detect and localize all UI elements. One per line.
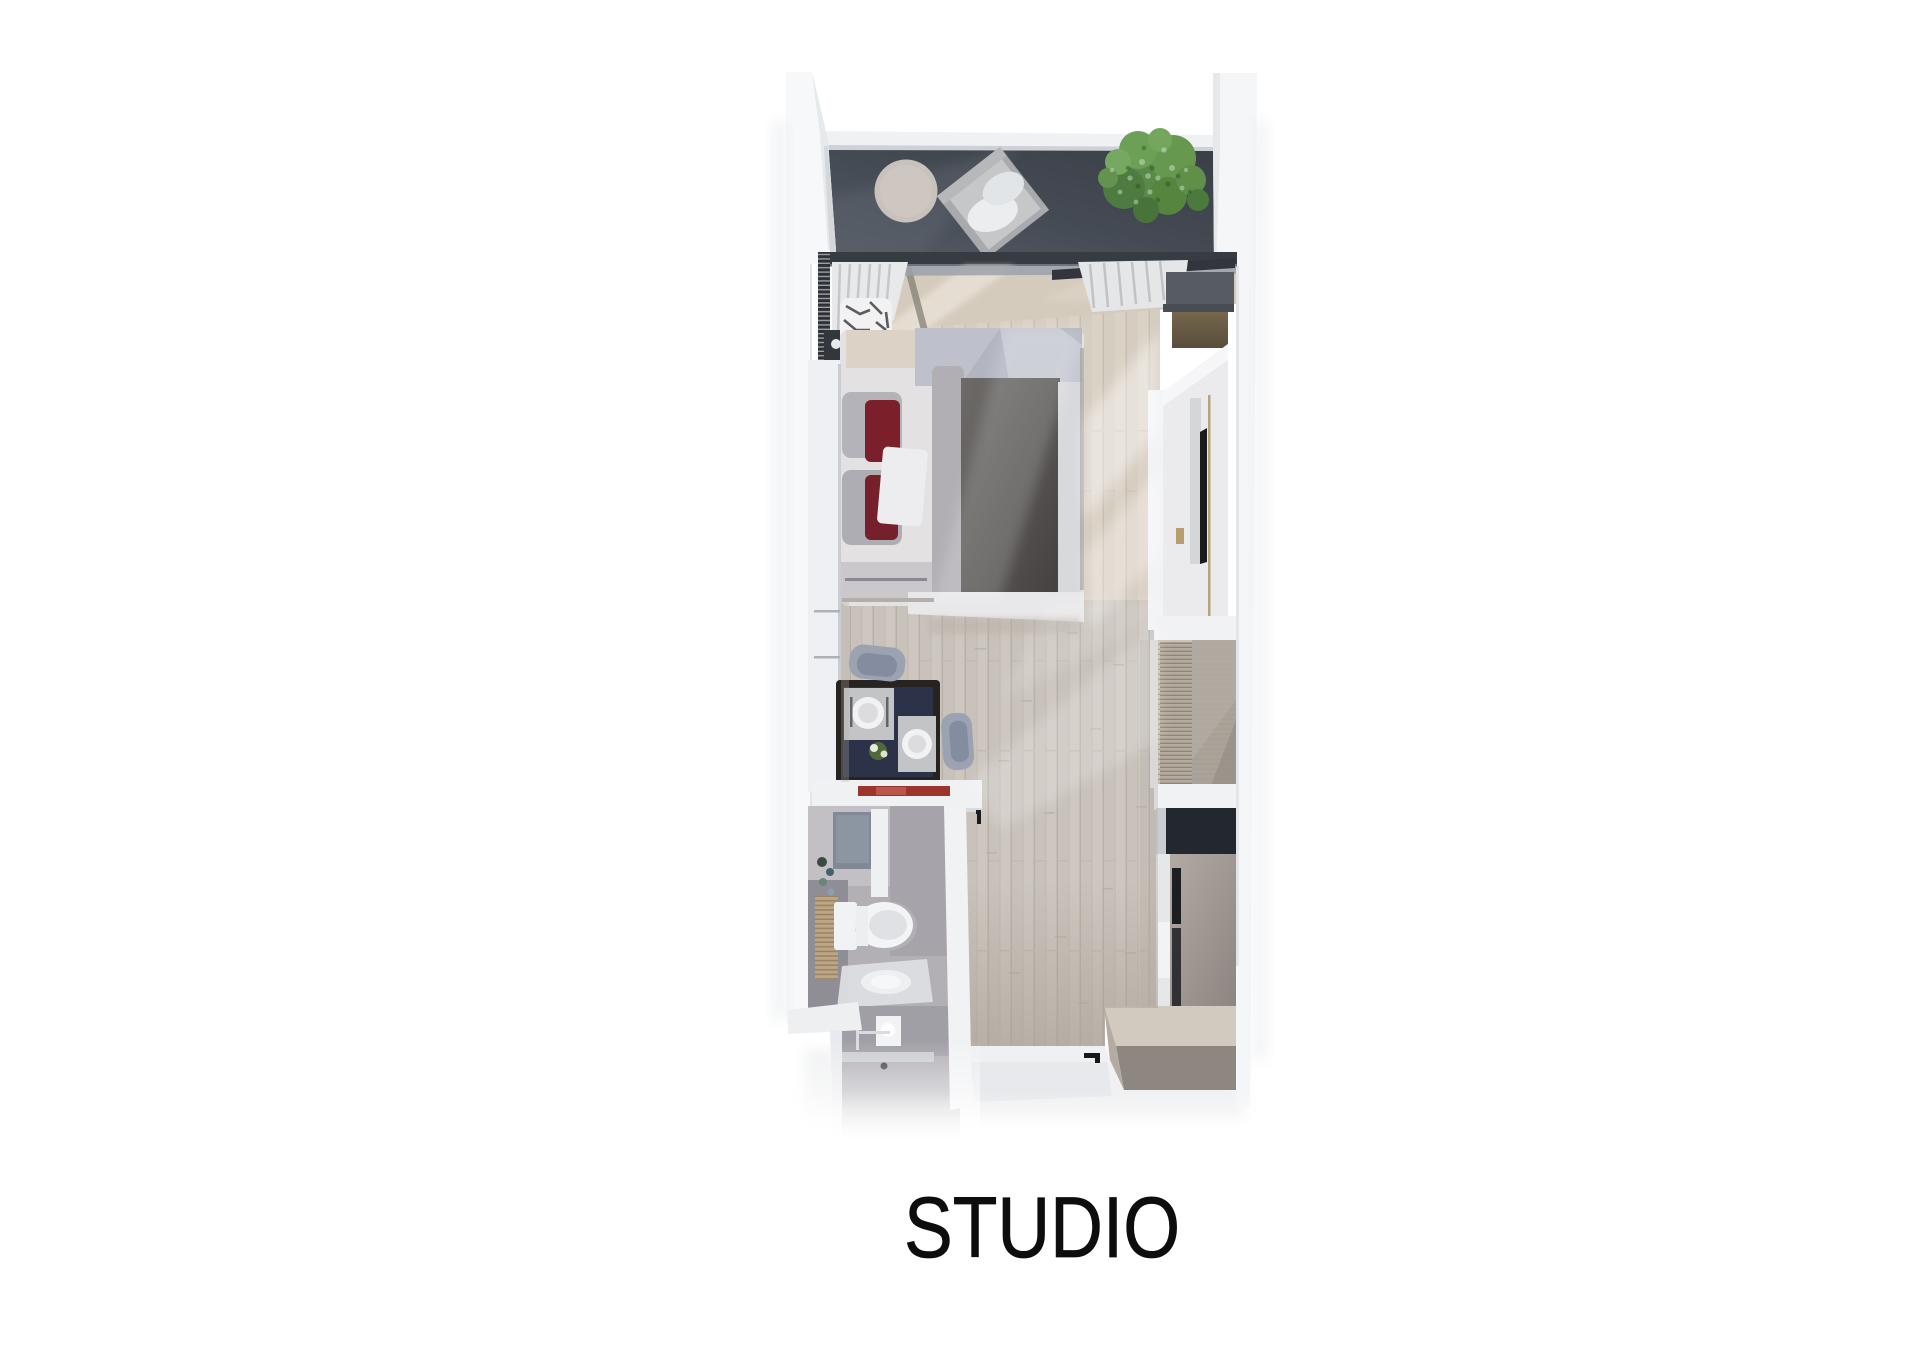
svg-text:STUDIO: STUDIO [904, 1179, 1180, 1275]
